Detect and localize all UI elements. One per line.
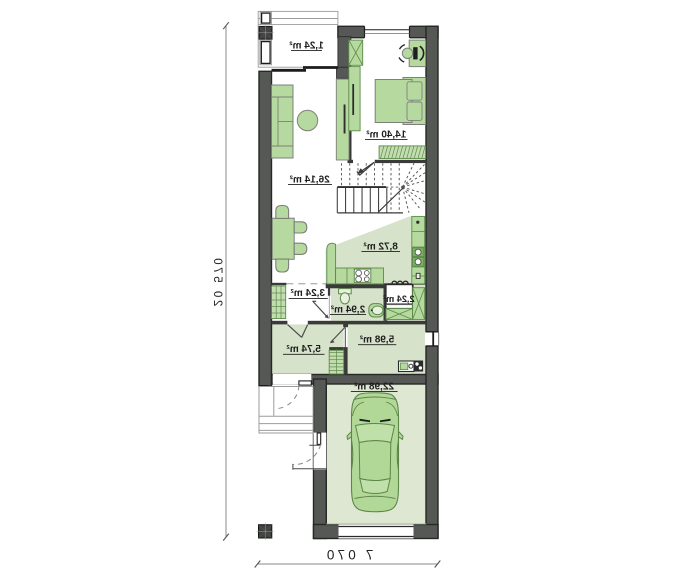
svg-text:26,14 m²: 26,14 m²: [289, 175, 330, 186]
svg-text:22,98 m²: 22,98 m²: [353, 381, 394, 392]
svg-text:5,74 m²: 5,74 m²: [286, 344, 321, 355]
svg-text:3,24 m²: 3,24 m²: [290, 288, 325, 299]
svg-text:2,24 m²: 2,24 m²: [383, 294, 415, 304]
svg-text:20 570: 20 570: [211, 256, 223, 307]
svg-text:1,24 m²: 1,24 m²: [289, 40, 324, 51]
svg-text:7 070: 7 070: [324, 548, 374, 563]
svg-text:2,94 m²: 2,94 m²: [330, 305, 365, 316]
svg-text:8,72 m²: 8,72 m²: [363, 242, 398, 253]
svg-text:14,40 m²: 14,40 m²: [366, 129, 407, 140]
svg-text:5,98 m²: 5,98 m²: [359, 335, 394, 346]
